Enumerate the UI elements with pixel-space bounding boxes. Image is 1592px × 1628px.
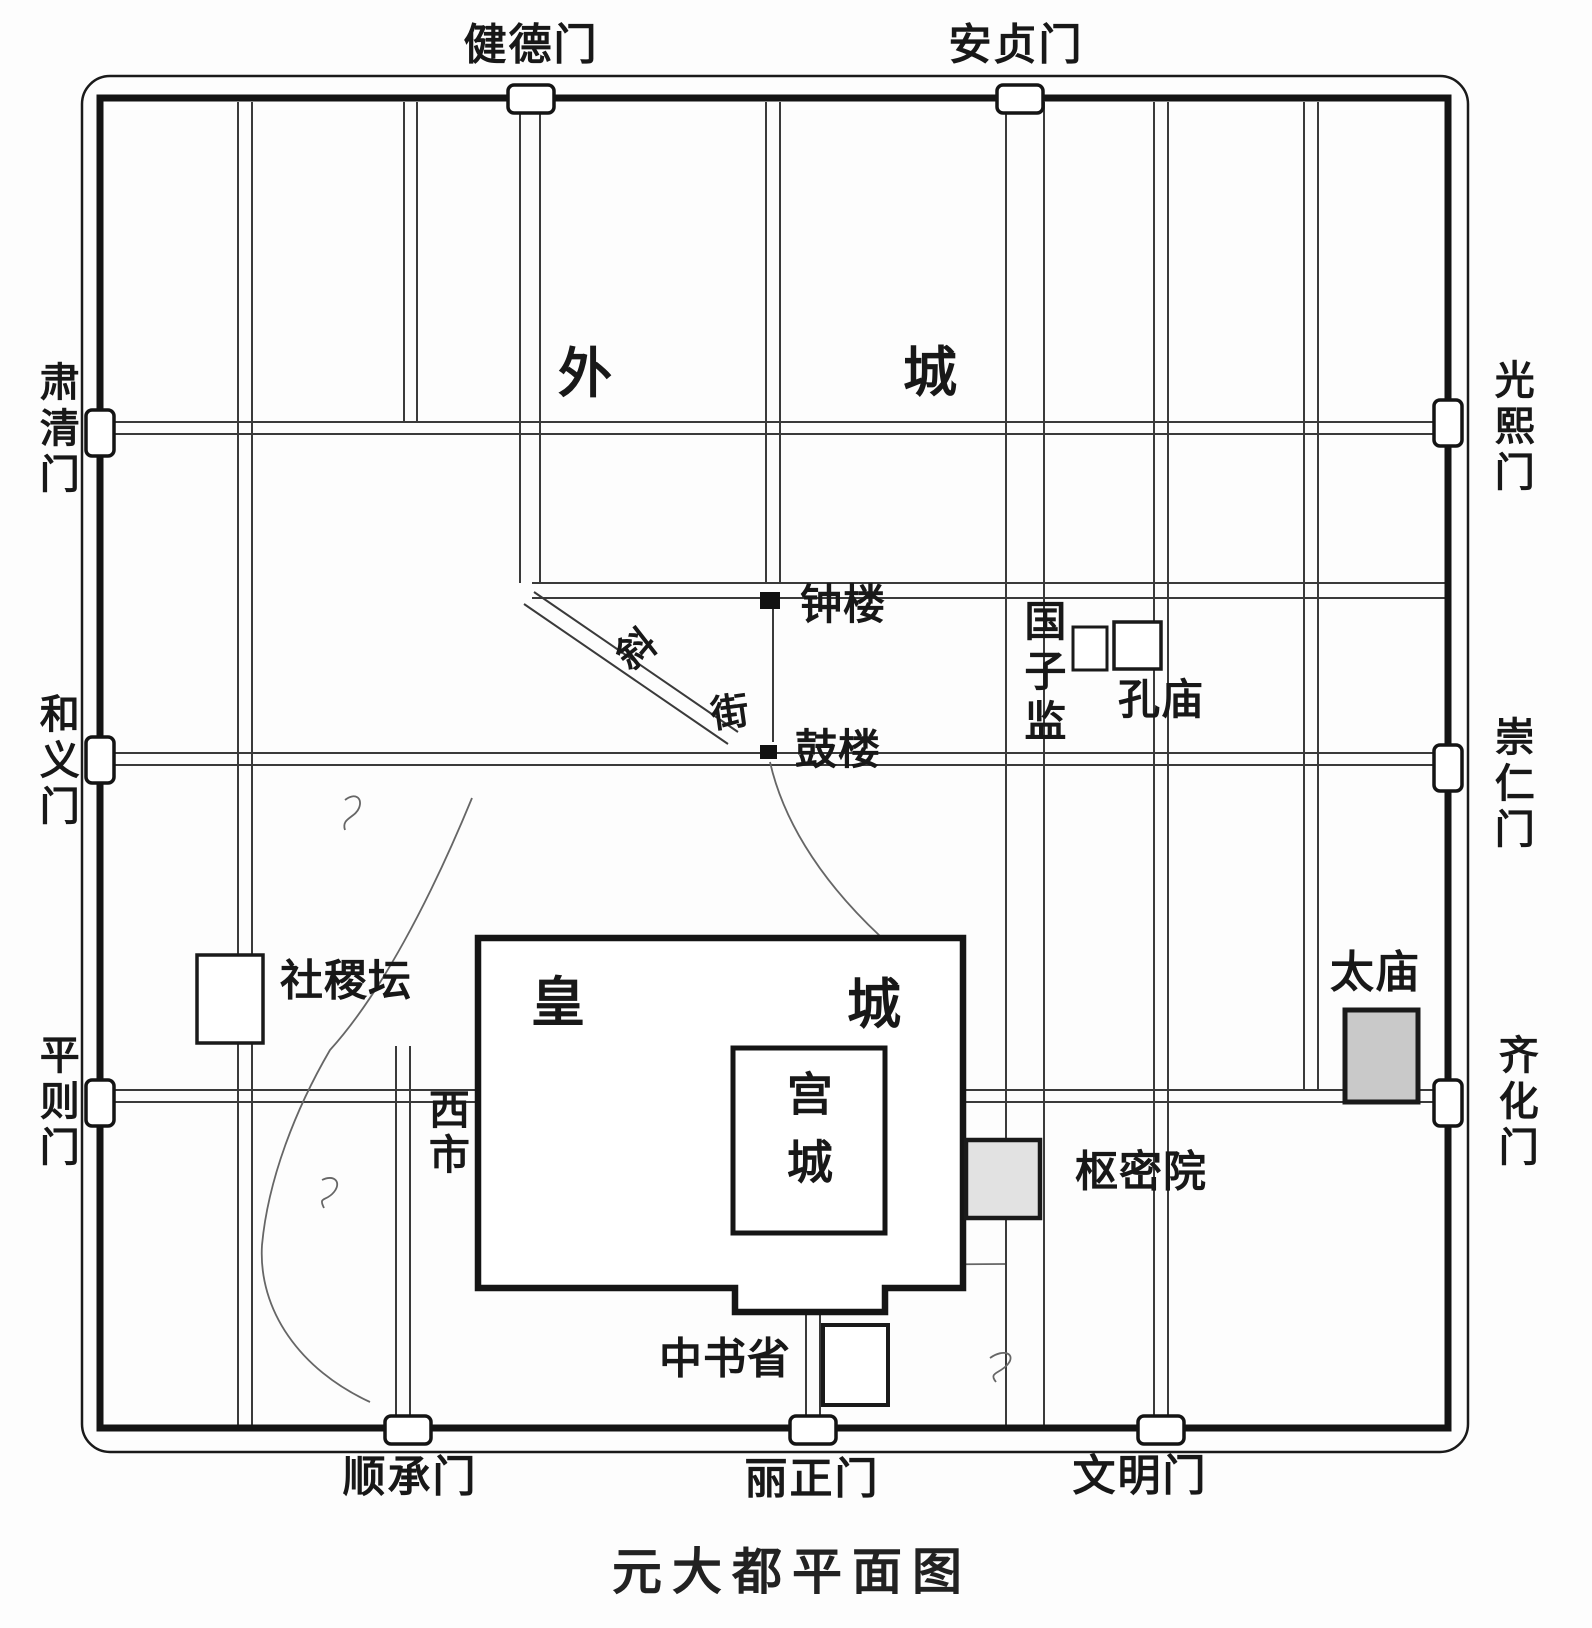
secretariat-label: 中书省 [659,1338,791,1383]
yuan-dadu-map: 健德门 安贞门 肃清门 和义门 平则门 光熙门 崇仁门 齐化门 顺承门 丽正门 … [0,0,1592,1628]
river-scribble-2 [322,1178,337,1208]
bell-tower-marker [760,592,780,609]
gate-mark-pingzemen [86,1080,114,1126]
street-lizhengmen-ns [806,1312,820,1428]
palace-city-label: 宫城 [782,1070,830,1206]
gate-mark-shunchengmen [385,1416,431,1444]
sheji-altar-label: 社稷坛 [280,960,412,1005]
palace-inflow-river [770,762,880,936]
west-market-label: 西市 [424,1088,467,1178]
street-shunchengmen-ns [396,1046,410,1428]
imperial-academy-square-1 [1073,627,1107,670]
privy-council-label: 枢密院 [1075,1151,1207,1196]
map-title: 元大都平面图 [612,1546,972,1598]
gate-mark-guangximen [1434,400,1462,446]
imperial-academy-square-2 [1114,622,1161,669]
sheji-altar-square [197,955,263,1043]
gate-label-guangximen: 光熙门 [1489,359,1531,497]
bell-tower-label: 钟楼 [800,583,886,627]
gate-mark-wenmingmen [1138,1416,1184,1444]
river-scribble-3 [990,1353,1011,1382]
imperial-city-label-1: 皇 [531,975,585,1031]
gate-label-shunchengmen: 顺承门 [343,1456,478,1501]
street-belltower-ew [532,583,1448,598]
map-drawing [0,0,1592,1628]
privy-council-square [966,1140,1040,1218]
gate-label-anzhenmen: 安贞门 [949,24,1084,69]
gate-mark-chongrenmen [1434,745,1462,791]
gate-mark-suqingmen [86,410,114,456]
drum-tower-marker [760,745,777,759]
street-ne-ns [1304,102,1318,1090]
gate-mark-anzhenmen [997,85,1043,113]
secretariat-square [823,1325,888,1405]
gate-mark-jiandemen [508,85,554,113]
street-jiandemen-ns [520,102,540,583]
ancestral-temple-square [1345,1010,1418,1102]
diagonal-street-label-2: 街 [708,692,753,737]
gate-mark-qihuamen [1434,1080,1462,1126]
gate-label-qihuamen: 齐化门 [1493,1034,1535,1172]
confucius-temple-label: 孔庙 [1118,678,1204,722]
gate-label-wenmingmen: 文明门 [1073,1455,1208,1500]
imperial-city-label-2: 城 [847,977,901,1033]
gate-label-heyimen: 和义门 [34,693,76,831]
gate-label-lizhengmen: 丽正门 [745,1458,880,1503]
gate-label-pingzemen: 平则门 [34,1034,76,1172]
street-nw-ns [404,102,417,422]
gate-label-jiandemen: 健德门 [464,24,599,69]
imperial-academy-label: 国子监 [1020,599,1064,749]
gate-label-chongrenmen: 崇仁门 [1489,716,1531,854]
street-north-ew [103,422,1445,434]
outer-city-label-2: 城 [903,345,957,401]
outer-city-label-1: 外 [558,346,612,402]
river-scribble-1 [344,796,360,830]
gate-label-suqingmen: 肃清门 [34,361,76,499]
gate-mark-lizhengmen [790,1416,836,1444]
street-center-ns [766,102,780,583]
drum-tower-label: 鼓楼 [795,728,881,772]
ancestral-temple-label: 太庙 [1330,950,1420,996]
gate-mark-heyimen [86,737,114,783]
